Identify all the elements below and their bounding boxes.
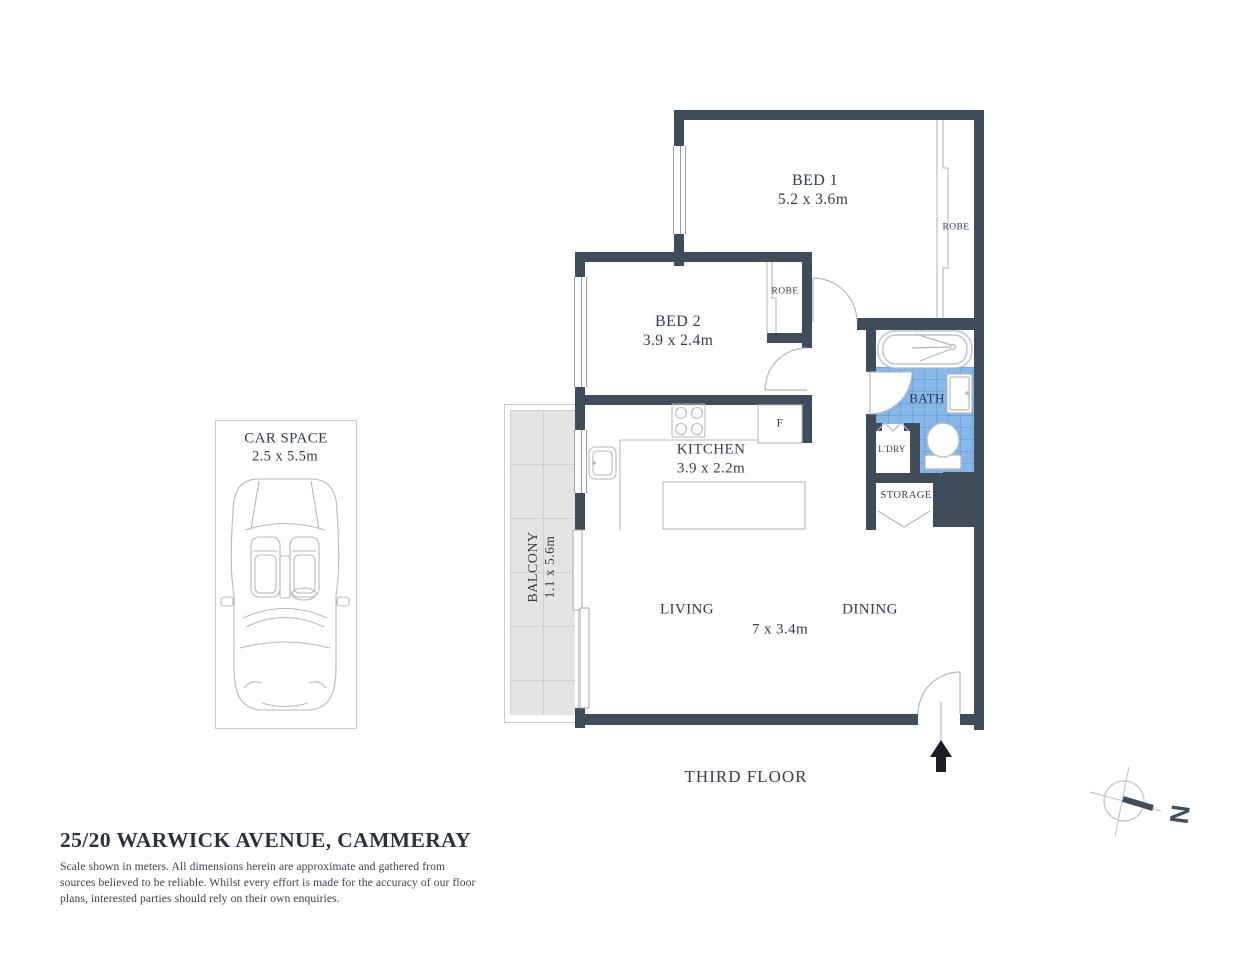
bifold-door-icon	[878, 511, 930, 527]
plan-linework: N	[0, 0, 1242, 960]
robe-label: ROBE	[772, 287, 799, 298]
robe-label: ROBE	[943, 223, 970, 234]
bed2-label: BED 2	[655, 313, 701, 331]
disclaimer-line: Scale shown in meters. All dimensions he…	[60, 859, 475, 875]
robe-sliding-door-icon	[767, 262, 776, 333]
car-space-label: CAR SPACE	[244, 430, 328, 447]
disclaimer-text: Scale shown in meters. All dimensions he…	[60, 859, 475, 907]
bathtub-icon	[878, 331, 972, 368]
floor-level-label: THIRD FLOOR	[685, 767, 808, 787]
fridge-label: F	[777, 417, 784, 430]
disclaimer-line: plans, interested parties should rely on…	[60, 891, 475, 907]
bath-door-arc	[870, 372, 912, 414]
bath-label: BATH	[909, 392, 945, 407]
sink-icon	[589, 447, 616, 479]
kitchen-dims: 3.9 x 2.2m	[677, 460, 745, 477]
toilet-icon	[925, 423, 961, 469]
bed1-label: BED 1	[792, 172, 838, 190]
car-space-dims: 2.5 x 5.5m	[252, 449, 318, 466]
dining-label: DINING	[842, 601, 898, 618]
stove-icon	[672, 404, 705, 437]
entry-arrow-icon	[930, 702, 952, 772]
floorplan-page: { "colors":{"wall":"#3F4C59","line":"#B3…	[0, 0, 1242, 960]
living-dining-dims: 7 x 3.4m	[752, 621, 808, 638]
laundry-label: L'DRY	[878, 444, 906, 454]
plan-title: 25/20 WARWICK AVENUE, CAMMERAY	[60, 828, 471, 853]
disclaimer-line: sources believed to be reliable. Whilst …	[60, 875, 475, 891]
storage-label: STORAGE	[880, 490, 931, 502]
balcony-label: BALCONY 1.1 x 5.6m	[526, 531, 558, 602]
bed1-dims: 5.2 x 3.6m	[778, 191, 848, 209]
compass-north-label: N	[1164, 803, 1196, 826]
vanity-icon	[947, 374, 972, 413]
balcony-name: BALCONY	[526, 531, 542, 602]
island-bench	[663, 482, 805, 529]
bed2-dims: 3.9 x 2.4m	[643, 332, 713, 350]
kitchen-label: KITCHEN	[677, 441, 746, 458]
compass-icon: N	[1090, 767, 1196, 836]
living-label: LIVING	[660, 601, 714, 618]
bifold-door-icon	[877, 423, 909, 431]
car-icon	[221, 479, 349, 710]
sliding-door-icon	[573, 530, 589, 708]
robe-sliding-door-icon	[937, 120, 948, 318]
balcony-dims: 1.1 x 5.6m	[542, 531, 558, 602]
